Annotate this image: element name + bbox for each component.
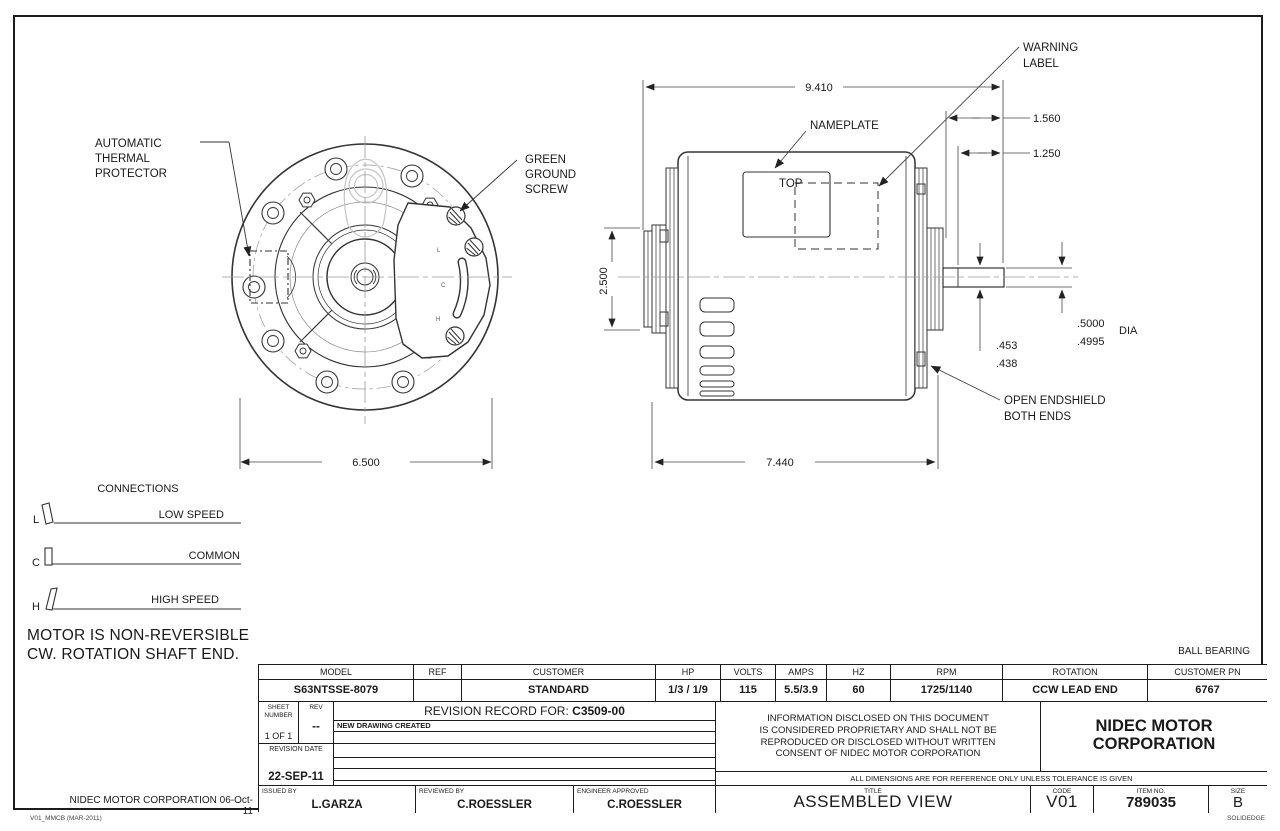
item-no-value: 789035 (1094, 794, 1208, 811)
spec-header-hz: HZ (827, 665, 891, 680)
terminal-letter-h: H (436, 317, 440, 323)
dim-flat-hi: .453 (996, 340, 1017, 352)
dim-dia-lo: .4995 (1077, 336, 1105, 348)
ground-screw-label: GREEN (525, 154, 566, 166)
spec-header-amps: AMPS (776, 665, 827, 680)
issued-by-value: L.GARZA (259, 799, 415, 811)
spec-header-rotation: ROTATION (1003, 665, 1148, 680)
connection-letter: L (33, 514, 39, 526)
revision-date-value: 22-SEP-11 (259, 771, 333, 783)
terminal-cover (394, 203, 490, 358)
reviewed-by-cell: REVIEWED BY C.ROESSLER (416, 786, 574, 813)
cad-system-mark: SOLIDEDGE (1185, 815, 1265, 822)
svg-text:LABEL: LABEL (1023, 58, 1059, 70)
spec-header-customer-pn: CUSTOMER PN (1148, 665, 1267, 680)
svg-text:BOTH ENDS: BOTH ENDS (1004, 411, 1071, 423)
proprietary-notice: INFORMATION DISCLOSED ON THIS DOCUMENT I… (716, 702, 1041, 772)
dim-overall-text: 9.410 (805, 82, 833, 94)
svg-text:HIGH SPEED: HIGH SPEED (151, 594, 219, 606)
revision-record-row (334, 758, 716, 769)
bolt-ear (401, 165, 423, 187)
warning-label-text: WARNING (1023, 42, 1078, 54)
revision-record-row (334, 744, 716, 758)
spec-value-hz: 60 (827, 680, 891, 702)
front-view (222, 136, 512, 424)
spec-value-hp: 1/3 / 1/9 (656, 680, 721, 702)
connection-label: LOW SPEED (159, 509, 224, 521)
company-name: NIDEC MOTOR CORPORATION (1041, 702, 1267, 772)
dim-2500-text: 2.500 (598, 267, 610, 295)
title-cell: TITLE ASSEMBLED VIEW (716, 786, 1031, 813)
rev-value: -- (299, 721, 333, 733)
revision-record-row (334, 769, 716, 781)
connections-title: CONNECTIONS (97, 483, 178, 495)
revision-record-note: NEW DRAWING CREATED (334, 721, 716, 732)
spec-value-amps: 5.5/3.9 (776, 680, 827, 702)
spec-value-rpm: 1725/1140 (891, 680, 1003, 702)
dim-6500-text: 6.500 (352, 457, 380, 469)
spec-header-ref: REF (414, 665, 462, 680)
top-label: TOP (779, 178, 803, 190)
spec-value-volts: 115 (721, 680, 776, 702)
sheet-number-value: 1 OF 1 (259, 731, 298, 741)
rev-cell: REV -- (299, 702, 334, 744)
revision-record-row (334, 732, 716, 744)
revision-record-number: C3509-00 (572, 704, 625, 718)
svg-text:H: H (32, 601, 40, 613)
svg-text:THERMAL: THERMAL (95, 153, 151, 165)
engineer-approved-value: C.ROESSLER (574, 799, 715, 811)
reviewed-by-value: C.ROESSLER (416, 799, 573, 811)
svg-text:SCREW: SCREW (525, 184, 568, 196)
revision-date-cell: REVISION DATE 22-SEP-11 (259, 744, 334, 786)
bearing-note: BALL BEARING (1050, 646, 1250, 657)
ground-screw (447, 207, 465, 225)
svg-text:GROUND: GROUND (525, 169, 576, 181)
code-value: V01 (1031, 792, 1093, 812)
dim-7440-text: 7.440 (766, 457, 794, 469)
spec-value-ref (414, 680, 462, 702)
size-value: B (1209, 794, 1267, 811)
sheet-number-cell: SHEET NUMBER 1 OF 1 (259, 702, 299, 744)
rotation-note-line2: CW. ROTATION SHAFT END. (27, 646, 239, 663)
spec-header-model: MODEL (259, 665, 414, 680)
footer-company-date: NIDEC MOTOR CORPORATION 06-Oct-11 (60, 795, 253, 817)
dim-1250-text: 1.250 (1033, 148, 1061, 160)
revision-record-header: REVISION RECORD FOR: C3509-00 (334, 702, 716, 721)
dim-flat-lo: .438 (996, 358, 1017, 370)
size-cell: SIZE B (1209, 786, 1267, 813)
dim-1560-text: 1.560 (1033, 113, 1061, 125)
dim-dia-hi: .5000 (1077, 318, 1105, 330)
spec-value-customer-pn: 6767 (1148, 680, 1267, 702)
title-block: MODEL REF CUSTOMER HP VOLTS AMPS HZ RPM … (258, 664, 1267, 812)
terminal-letter-c: C (441, 283, 446, 289)
shaft (943, 268, 1004, 287)
right-endshield (915, 168, 943, 388)
spec-value-model: S63NTSSE-8079 (259, 680, 414, 702)
spec-header-volts: VOLTS (721, 665, 776, 680)
svg-text:PROTECTOR: PROTECTOR (95, 168, 167, 180)
dim-dia-suffix: DIA (1119, 325, 1138, 337)
engineer-approved-cell: ENGINEER APPROVED C.ROESSLER (574, 786, 716, 813)
spec-header-customer: CUSTOMER (462, 665, 656, 680)
nameplate-label: NAMEPLATE (810, 120, 879, 132)
drawing-title: ASSEMBLED VIEW (716, 792, 1030, 812)
rotation-note-line1: MOTOR IS NON-REVERSIBLE (27, 627, 249, 644)
template-version-mark: V01_MMCB (MAR-2011) (30, 815, 102, 822)
left-endshield (644, 168, 678, 388)
item-no-cell: ITEM NO. 789035 (1094, 786, 1209, 813)
thermal-protector-label: AUTOMATIC (95, 138, 162, 150)
issued-by-cell: ISSUED BY L.GARZA (259, 786, 416, 813)
spec-value-rotation: CCW LEAD END (1003, 680, 1148, 702)
svg-text:C: C (32, 557, 40, 569)
spec-value-customer: STANDARD (462, 680, 656, 702)
spec-header-rpm: RPM (891, 665, 1003, 680)
spec-header-hp: HP (656, 665, 721, 680)
drawing-sheet: L C H AUTOMATIC THERMAL PROTECTOR GREEN … (0, 0, 1280, 831)
svg-text:COMMON: COMMON (189, 550, 240, 562)
tolerance-note: ALL DIMENSIONS ARE FOR REFERENCE ONLY UN… (716, 772, 1267, 786)
code-cell: CODE V01 (1031, 786, 1094, 813)
endshield-label: OPEN ENDSHIELD (1004, 395, 1106, 407)
connections-legend: CONNECTIONS L LOW SPEED C COMMON H HIGH … (32, 483, 241, 613)
